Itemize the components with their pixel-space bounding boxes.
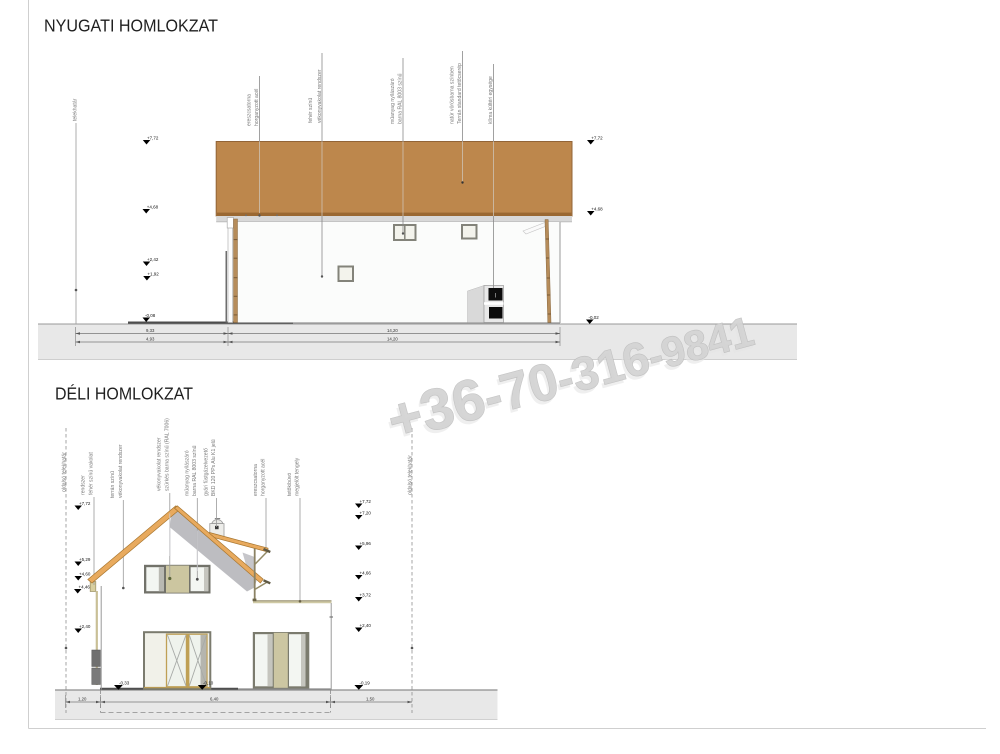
- svg-text:barna RAL 8003 színű: barna RAL 8003 színű: [192, 445, 198, 496]
- svg-text:fehér színű: fehér színű: [308, 98, 314, 123]
- svg-text:oldalsó telekhatár: oldalsó telekhatár: [62, 452, 68, 492]
- svg-text:Terrán standard tetőcserép: Terrán standard tetőcserép: [457, 63, 463, 124]
- svg-text:+4,68: +4,68: [591, 207, 603, 212]
- svg-text:+7,72: +7,72: [591, 136, 603, 141]
- svg-text:9,33: 9,33: [146, 328, 155, 333]
- svg-text:-0,02: -0,02: [589, 315, 600, 320]
- svg-text:szürkés barna színű (RAL 7006): szürkés barna színű (RAL 7006): [164, 418, 170, 491]
- svg-text:tetőkibúvó: tetőkibúvó: [287, 473, 293, 496]
- svg-text:ereszcsatorna: ereszcsatorna: [253, 464, 259, 496]
- svg-text:megjelölt tengely: megjelölt tengely: [295, 457, 301, 496]
- svg-text:1,20: 1,20: [78, 697, 87, 702]
- svg-text:horganyzott acél: horganyzott acél: [261, 459, 267, 496]
- svg-text:+1,92: +1,92: [147, 272, 159, 277]
- svg-text:14,20: 14,20: [387, 328, 398, 333]
- svg-text:+2,40: +2,40: [79, 624, 91, 629]
- svg-text:+4,60: +4,60: [79, 572, 91, 577]
- svg-text:vékonyvakolat rendszer: vékonyvakolat rendszer: [118, 444, 124, 498]
- svg-text:BKD 120 PPs Alu K1 jelű: BKD 120 PPs Alu K1 jelű: [211, 439, 217, 496]
- svg-text:-0,08: -0,08: [145, 313, 156, 318]
- svg-text:-0,33: -0,33: [119, 681, 130, 686]
- svg-text:oldalsó telekhatár: oldalsó telekhatár: [408, 455, 414, 495]
- svg-text:+4,46: +4,46: [79, 585, 91, 590]
- svg-text:natúr vörösbarna színben: natúr vörösbarna színben: [450, 66, 456, 124]
- svg-text:rendszer: rendszer: [81, 475, 87, 495]
- svg-text:+3,72: +3,72: [360, 593, 372, 598]
- svg-text:+7,72: +7,72: [147, 136, 159, 141]
- svg-text:barna RAL 8003 színű: barna RAL 8003 színű: [398, 73, 404, 124]
- svg-text:+4,68: +4,68: [147, 205, 159, 210]
- svg-text:+2,42: +2,42: [147, 257, 159, 262]
- svg-text:4,93: 4,93: [146, 337, 155, 342]
- svg-text:+7,72: +7,72: [360, 499, 372, 504]
- svg-text:+2,40: +2,40: [360, 623, 372, 628]
- svg-text:gyári füstgázelvezető: gyári füstgázelvezető: [203, 448, 209, 496]
- svg-text:műanyag nyílászáró: műanyag nyílászáró: [184, 450, 190, 496]
- svg-text:+5,29: +5,29: [79, 557, 91, 562]
- svg-text:-0,19: -0,19: [360, 681, 371, 686]
- svg-text:+5,96: +5,96: [360, 541, 372, 546]
- svg-text:telekhatár: telekhatár: [73, 98, 79, 121]
- svg-text:6,40: 6,40: [210, 697, 219, 702]
- svg-text:horganyzott acél: horganyzott acél: [254, 89, 260, 126]
- svg-text:+7,20: +7,20: [360, 511, 372, 516]
- svg-text:klíma kültéri egysége: klíma kültéri egysége: [488, 76, 494, 124]
- svg-text:ereszcsatorna: ereszcsatorna: [247, 94, 253, 126]
- svg-text:műanyag nyílászáró: műanyag nyílászáró: [390, 78, 396, 124]
- svg-text:+7,72: +7,72: [79, 501, 91, 506]
- svg-text:terrán színű: terrán színű: [110, 471, 116, 498]
- svg-text:+4,66: +4,66: [360, 571, 372, 576]
- svg-text:NYUGATI HOMLOKZAT: NYUGATI HOMLOKZAT: [44, 16, 218, 36]
- svg-text:1,50: 1,50: [366, 697, 375, 702]
- svg-text:fehér színű vakolat: fehér színű vakolat: [89, 452, 95, 495]
- svg-text:DÉLI HOMLOKZAT: DÉLI HOMLOKZAT: [55, 384, 193, 404]
- svg-text:-0,10: -0,10: [203, 681, 214, 686]
- svg-text:vékonyvakolat rendszer: vékonyvakolat rendszer: [317, 69, 323, 123]
- svg-text:vékonyvakolat rendszer: vékonyvakolat rendszer: [156, 437, 162, 491]
- svg-text:14,20: 14,20: [387, 337, 398, 342]
